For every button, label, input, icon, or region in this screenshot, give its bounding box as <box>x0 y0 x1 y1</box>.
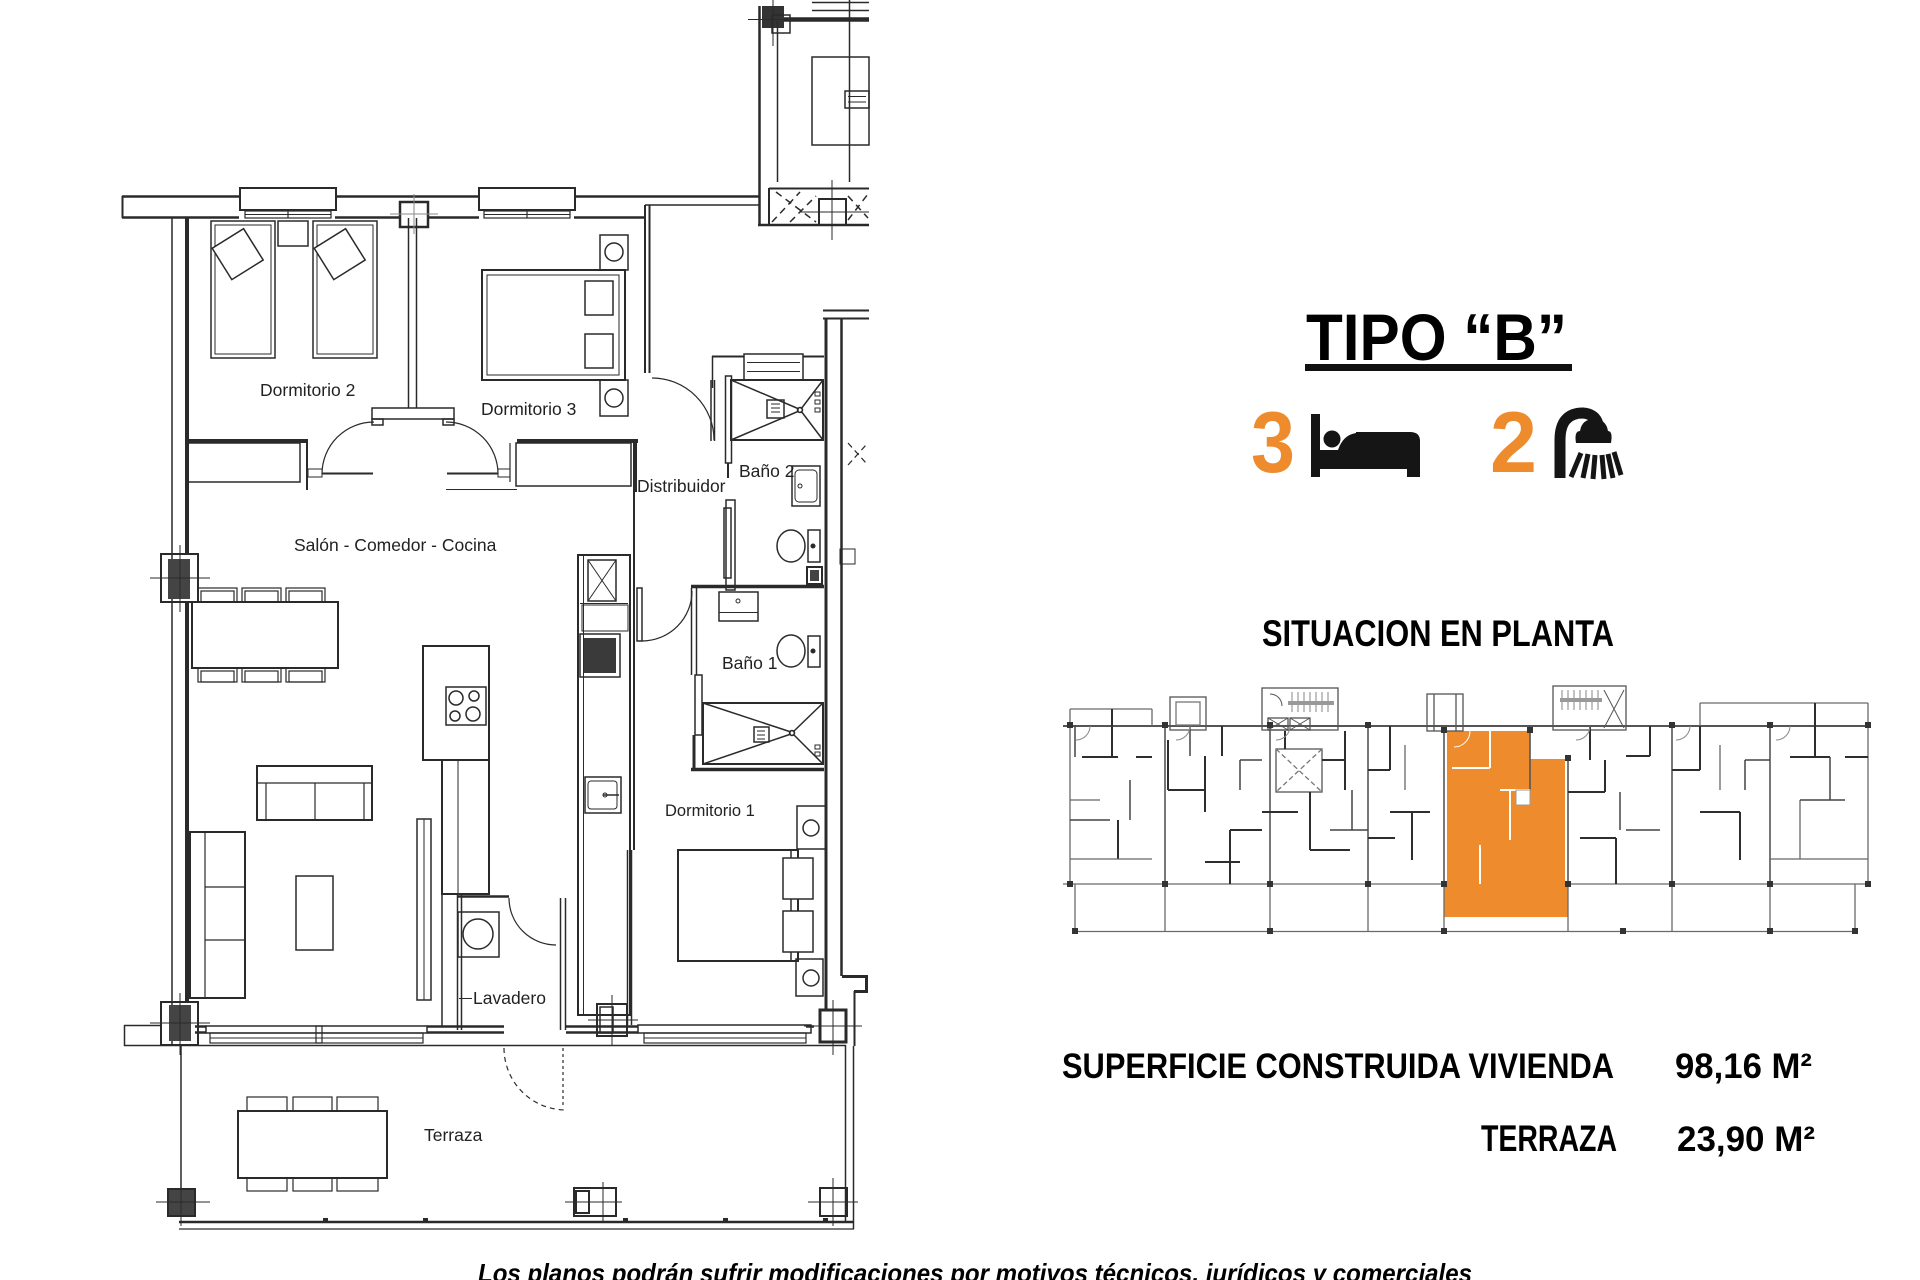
svg-text:SUPERFICIE CONSTRUIDA VIVIENDA: SUPERFICIE CONSTRUIDA VIVIENDA <box>1062 1047 1614 1086</box>
svg-text:2: 2 <box>1490 395 1537 491</box>
svg-text:SITUACION EN PLANTA: SITUACION EN PLANTA <box>1262 613 1614 654</box>
svg-text:23,90 M²: 23,90 M² <box>1677 1120 1815 1159</box>
svg-text:Baño 1: Baño 1 <box>722 653 777 673</box>
svg-text:Dormitorio 2: Dormitorio 2 <box>260 380 355 400</box>
svg-text:Lavadero: Lavadero <box>473 988 546 1008</box>
svg-text:98,16 M²: 98,16 M² <box>1675 1047 1812 1086</box>
svg-text:Distribuidor: Distribuidor <box>637 476 726 496</box>
svg-text:3: 3 <box>1251 395 1295 491</box>
svg-text:Terraza: Terraza <box>424 1125 483 1145</box>
svg-text:Salón - Comedor - Cocina: Salón - Comedor - Cocina <box>294 535 497 555</box>
svg-text:Dormitorio 1: Dormitorio 1 <box>665 802 755 820</box>
svg-text:TERRAZA: TERRAZA <box>1481 1118 1617 1159</box>
svg-text:TIPO “B”: TIPO “B” <box>1306 300 1567 374</box>
svg-text:Los planos podrán sufrir modif: Los planos podrán sufrir modificaciones … <box>478 1258 1472 1280</box>
svg-text:Dormitorio 3: Dormitorio 3 <box>481 399 576 419</box>
svg-text:Baño 2: Baño 2 <box>739 461 794 481</box>
